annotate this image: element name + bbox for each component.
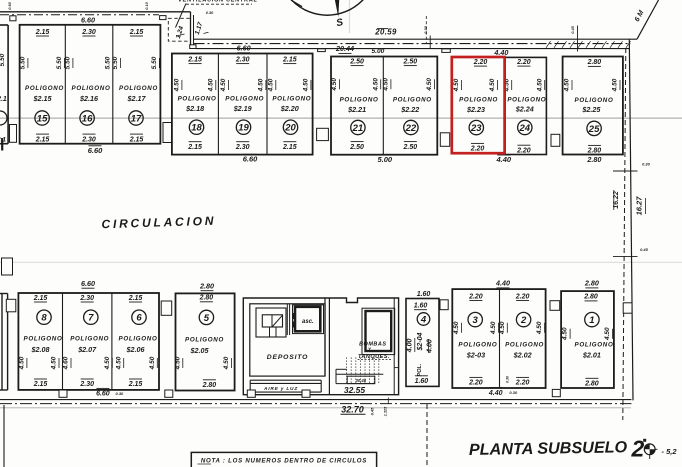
svg-text:POL.: POL. bbox=[417, 363, 423, 376]
svg-text:5.50: 5.50 bbox=[56, 56, 63, 69]
svg-text:2.20: 2.20 bbox=[468, 293, 483, 300]
svg-text:POLIGONO: POLIGONO bbox=[225, 95, 264, 102]
svg-text:0.45: 0.45 bbox=[369, 407, 374, 416]
svg-text:VENTILACION CENTRAL: VENTILACION CENTRAL bbox=[178, 0, 258, 4]
svg-text:2.20: 2.20 bbox=[516, 147, 531, 154]
svg-text:4: 4 bbox=[420, 314, 427, 325]
svg-text:22: 22 bbox=[405, 123, 417, 134]
svg-text:2.80: 2.80 bbox=[583, 294, 598, 301]
svg-text:0.45: 0.45 bbox=[571, 25, 575, 33]
svg-text:7: 7 bbox=[88, 313, 94, 324]
svg-text:4.40: 4.40 bbox=[495, 279, 510, 288]
svg-text:0.45: 0.45 bbox=[640, 247, 649, 252]
svg-text:POLIGONO: POLIGONO bbox=[340, 97, 379, 104]
svg-text:2.30: 2.30 bbox=[235, 144, 250, 151]
svg-text:6.60: 6.60 bbox=[81, 279, 95, 288]
svg-text:30.46: 30.46 bbox=[356, 378, 367, 383]
svg-text:0.30: 0.30 bbox=[642, 162, 651, 167]
svg-text:4.50: 4.50 bbox=[115, 356, 122, 370]
svg-text:$2.01: $2.01 bbox=[582, 350, 601, 359]
svg-text:4.00: 4.00 bbox=[427, 339, 434, 354]
svg-text:2.15: 2.15 bbox=[33, 295, 48, 302]
svg-text:$2.21: $2.21 bbox=[347, 105, 366, 114]
svg-text:5.00: 5.00 bbox=[371, 48, 384, 55]
svg-text:POLIGONO: POLIGONO bbox=[119, 85, 158, 92]
svg-text:0.10: 0.10 bbox=[145, 1, 149, 9]
svg-text:$2.23: $2.23 bbox=[466, 105, 485, 114]
svg-text:1.60: 1.60 bbox=[415, 378, 429, 385]
svg-text:4.50: 4.50 bbox=[499, 321, 506, 335]
svg-text:15: 15 bbox=[37, 113, 48, 124]
svg-text:6.60: 6.60 bbox=[88, 146, 103, 155]
svg-text:0.60: 0.60 bbox=[8, 1, 12, 9]
svg-text:0.30: 0.30 bbox=[506, 376, 510, 383]
svg-text:4.50: 4.50 bbox=[174, 78, 181, 92]
svg-text:4.50: 4.50 bbox=[174, 356, 181, 370]
svg-text:POLIGONO: POLIGONO bbox=[575, 342, 614, 349]
svg-text:2: 2 bbox=[520, 315, 527, 326]
svg-text:4.50: 4.50 bbox=[383, 78, 390, 92]
svg-text:4.50: 4.50 bbox=[536, 321, 543, 335]
svg-text:5.50: 5.50 bbox=[151, 56, 158, 69]
svg-text:2.15: 2.15 bbox=[282, 56, 297, 63]
svg-text:$2.1: $2.1 bbox=[0, 96, 7, 103]
svg-text:2.15: 2.15 bbox=[35, 29, 50, 36]
svg-text:24: 24 bbox=[519, 123, 531, 134]
svg-text:6.60: 6.60 bbox=[237, 44, 251, 53]
svg-text:4.50: 4.50 bbox=[19, 356, 26, 370]
svg-text:2.20: 2.20 bbox=[515, 293, 530, 300]
svg-text:18: 18 bbox=[191, 123, 202, 134]
svg-text:$2.07: $2.07 bbox=[77, 345, 97, 354]
svg-text:6.60: 6.60 bbox=[243, 155, 258, 164]
svg-text:$2.25: $2.25 bbox=[581, 105, 601, 114]
svg-text:17: 17 bbox=[131, 113, 142, 124]
svg-text:2.80: 2.80 bbox=[587, 148, 602, 155]
svg-text:2.80: 2.80 bbox=[586, 155, 601, 164]
svg-text:$2.18: $2.18 bbox=[185, 104, 204, 113]
svg-text:6.60: 6.60 bbox=[96, 391, 110, 398]
svg-text:2.15: 2.15 bbox=[129, 136, 144, 143]
svg-text:POLIGONO: POLIGONO bbox=[24, 336, 63, 343]
svg-text:POLIGONO: POLIGONO bbox=[507, 97, 546, 104]
svg-text:0.30: 0.30 bbox=[424, 25, 428, 33]
svg-text:4.50: 4.50 bbox=[604, 327, 611, 341]
svg-text:$2.05: $2.05 bbox=[190, 346, 210, 355]
svg-text:16.27: 16.27 bbox=[634, 196, 643, 216]
svg-text:20.44: 20.44 bbox=[335, 44, 354, 53]
svg-text:1.60: 1.60 bbox=[414, 303, 428, 310]
svg-text:4.50: 4.50 bbox=[331, 78, 338, 92]
svg-text:0.30: 0.30 bbox=[116, 391, 125, 396]
svg-text:POLIGONO: POLIGONO bbox=[72, 85, 111, 92]
svg-text:asc.: asc. bbox=[302, 319, 314, 325]
svg-text:2.30: 2.30 bbox=[81, 136, 96, 143]
svg-text:POLIGONO: POLIGONO bbox=[185, 337, 224, 344]
svg-text:3: 3 bbox=[473, 315, 479, 326]
svg-text:5: 5 bbox=[204, 313, 210, 324]
svg-text:POLIGONO: POLIGONO bbox=[505, 342, 544, 349]
svg-text:2.80: 2.80 bbox=[584, 279, 599, 288]
svg-text:2.15: 2.15 bbox=[33, 381, 48, 388]
svg-text:4.50: 4.50 bbox=[303, 78, 310, 92]
svg-text:19: 19 bbox=[238, 123, 249, 134]
svg-text:2.20: 2.20 bbox=[473, 59, 488, 66]
svg-text:2.30: 2.30 bbox=[79, 381, 94, 388]
svg-text:5.50: 5.50 bbox=[20, 56, 27, 69]
svg-text:4.50: 4.50 bbox=[453, 78, 460, 92]
svg-text:POLIGONO: POLIGONO bbox=[119, 336, 158, 343]
svg-text:5.50: 5.50 bbox=[0, 53, 6, 66]
svg-text:$2-04: $2-04 bbox=[417, 332, 424, 351]
svg-text:4.50: 4.50 bbox=[267, 78, 274, 92]
svg-text:4.50: 4.50 bbox=[453, 321, 460, 335]
svg-text:2.15: 2.15 bbox=[187, 56, 202, 63]
svg-text:2.50: 2.50 bbox=[402, 144, 417, 151]
svg-text:2.80: 2.80 bbox=[584, 381, 599, 388]
svg-text:2.20: 2.20 bbox=[470, 146, 485, 153]
svg-text:POLIGONO: POLIGONO bbox=[393, 97, 432, 104]
svg-text:$2-03: $2-03 bbox=[466, 350, 485, 359]
svg-text:2.20: 2.20 bbox=[515, 380, 530, 387]
svg-text:32.70: 32.70 bbox=[341, 404, 364, 414]
svg-text:DEPOSITO: DEPOSITO bbox=[267, 354, 308, 361]
svg-text:8: 8 bbox=[41, 313, 47, 324]
svg-text:4.50: 4.50 bbox=[426, 78, 433, 92]
svg-text:2.80: 2.80 bbox=[199, 282, 214, 291]
svg-text:2.15: 2.15 bbox=[35, 136, 50, 143]
svg-text:$2.22: $2.22 bbox=[400, 105, 419, 114]
svg-text:4.50: 4.50 bbox=[489, 78, 496, 92]
svg-text:20: 20 bbox=[284, 123, 296, 134]
svg-text:$2.16: $2.16 bbox=[79, 94, 99, 103]
svg-text:POLIGONO: POLIGONO bbox=[575, 97, 614, 104]
svg-text:4.40: 4.40 bbox=[495, 155, 511, 164]
svg-text:2.15: 2.15 bbox=[187, 144, 202, 151]
svg-text:32.55: 32.55 bbox=[344, 385, 366, 395]
svg-text:PLANTA SUBSUELO: PLANTA SUBSUELO bbox=[469, 438, 628, 459]
svg-text:2.30: 2.30 bbox=[79, 295, 94, 302]
svg-text:5.50: 5.50 bbox=[112, 56, 119, 69]
svg-text:POLIGONO: POLIGONO bbox=[178, 95, 217, 102]
svg-text:5.50: 5.50 bbox=[65, 56, 72, 69]
svg-text:BOMBAS: BOMBAS bbox=[359, 342, 386, 348]
svg-text:2.15: 2.15 bbox=[128, 381, 143, 388]
svg-text:$2.06: $2.06 bbox=[126, 345, 146, 354]
svg-text:4.50: 4.50 bbox=[258, 78, 265, 92]
svg-text:2.80: 2.80 bbox=[199, 295, 214, 302]
svg-text:0.30: 0.30 bbox=[206, 11, 214, 15]
svg-text:2.50: 2.50 bbox=[402, 58, 417, 65]
svg-text:$2.20: $2.20 bbox=[280, 104, 299, 113]
svg-text:2.15: 2.15 bbox=[282, 144, 297, 151]
svg-text:1: 1 bbox=[589, 315, 594, 326]
svg-text:2.30: 2.30 bbox=[81, 29, 96, 36]
svg-text:0.30: 0.30 bbox=[509, 390, 518, 395]
svg-text:4.50: 4.50 bbox=[51, 356, 58, 370]
svg-text:- 5,2: - 5,2 bbox=[662, 447, 678, 456]
svg-text:2: 2 bbox=[631, 436, 645, 462]
svg-text:4.40: 4.40 bbox=[488, 390, 503, 397]
svg-text:4.50: 4.50 bbox=[104, 356, 111, 370]
svg-text:5.50: 5.50 bbox=[105, 56, 112, 69]
svg-text:2.50: 2.50 bbox=[349, 58, 364, 65]
svg-text:4.60: 4.60 bbox=[63, 356, 70, 370]
svg-text:6.60: 6.60 bbox=[81, 15, 95, 24]
svg-text:4.50: 4.50 bbox=[562, 327, 569, 341]
svg-text:4.50: 4.50 bbox=[149, 356, 156, 370]
svg-text:2.20: 2.20 bbox=[516, 59, 531, 66]
svg-text:4.50: 4.50 bbox=[490, 321, 497, 335]
svg-text:2.30: 2.30 bbox=[235, 56, 250, 63]
svg-text:1.325: 1.325 bbox=[383, 406, 387, 416]
svg-text:2.80: 2.80 bbox=[587, 59, 602, 66]
svg-text:POLIGONO: POLIGONO bbox=[70, 336, 109, 343]
svg-text:$2.24: $2.24 bbox=[515, 105, 534, 114]
svg-text:4.50: 4.50 bbox=[372, 78, 379, 92]
svg-text:$2.17: $2.17 bbox=[127, 94, 147, 103]
svg-text:AIRE y LUZ: AIRE y LUZ bbox=[263, 386, 298, 392]
svg-text:POLIGONO: POLIGONO bbox=[458, 342, 497, 349]
svg-text:NOTA : LOS NUMEROS DENTRO DE C: NOTA : LOS NUMEROS DENTRO DE CIRCULOS bbox=[201, 457, 367, 464]
svg-text:POLIGONO: POLIGONO bbox=[272, 95, 311, 102]
svg-text:$2.19: $2.19 bbox=[233, 104, 252, 113]
svg-text:4.50: 4.50 bbox=[612, 78, 619, 92]
svg-text:4.50: 4.50 bbox=[207, 78, 214, 92]
svg-text:$2.08: $2.08 bbox=[31, 345, 50, 354]
svg-text:$2.02: $2.02 bbox=[513, 350, 532, 359]
svg-text:4.50: 4.50 bbox=[223, 356, 230, 370]
svg-text:4.50: 4.50 bbox=[220, 78, 227, 92]
svg-text:1.60: 1.60 bbox=[417, 291, 431, 298]
svg-text:21: 21 bbox=[352, 123, 364, 134]
svg-text:16: 16 bbox=[82, 113, 93, 124]
svg-text:4.50: 4.50 bbox=[536, 78, 543, 92]
svg-text:$2.15: $2.15 bbox=[33, 94, 53, 103]
svg-text:6: 6 bbox=[136, 313, 142, 324]
svg-text:2.15: 2.15 bbox=[129, 29, 144, 36]
svg-text:2.20: 2.20 bbox=[468, 380, 483, 387]
svg-text:2.15: 2.15 bbox=[128, 295, 143, 302]
svg-text:23: 23 bbox=[470, 123, 482, 134]
svg-text:4.50: 4.50 bbox=[564, 78, 571, 92]
svg-text:25: 25 bbox=[588, 124, 600, 135]
svg-text:2.50: 2.50 bbox=[349, 144, 364, 151]
svg-text:POLIGONO: POLIGONO bbox=[459, 97, 498, 104]
svg-text:4.00: 4.00 bbox=[407, 338, 414, 353]
svg-text:POLIGONO: POLIGONO bbox=[25, 85, 64, 92]
svg-text:2.80: 2.80 bbox=[202, 382, 217, 389]
svg-text:5.00: 5.00 bbox=[377, 155, 392, 164]
